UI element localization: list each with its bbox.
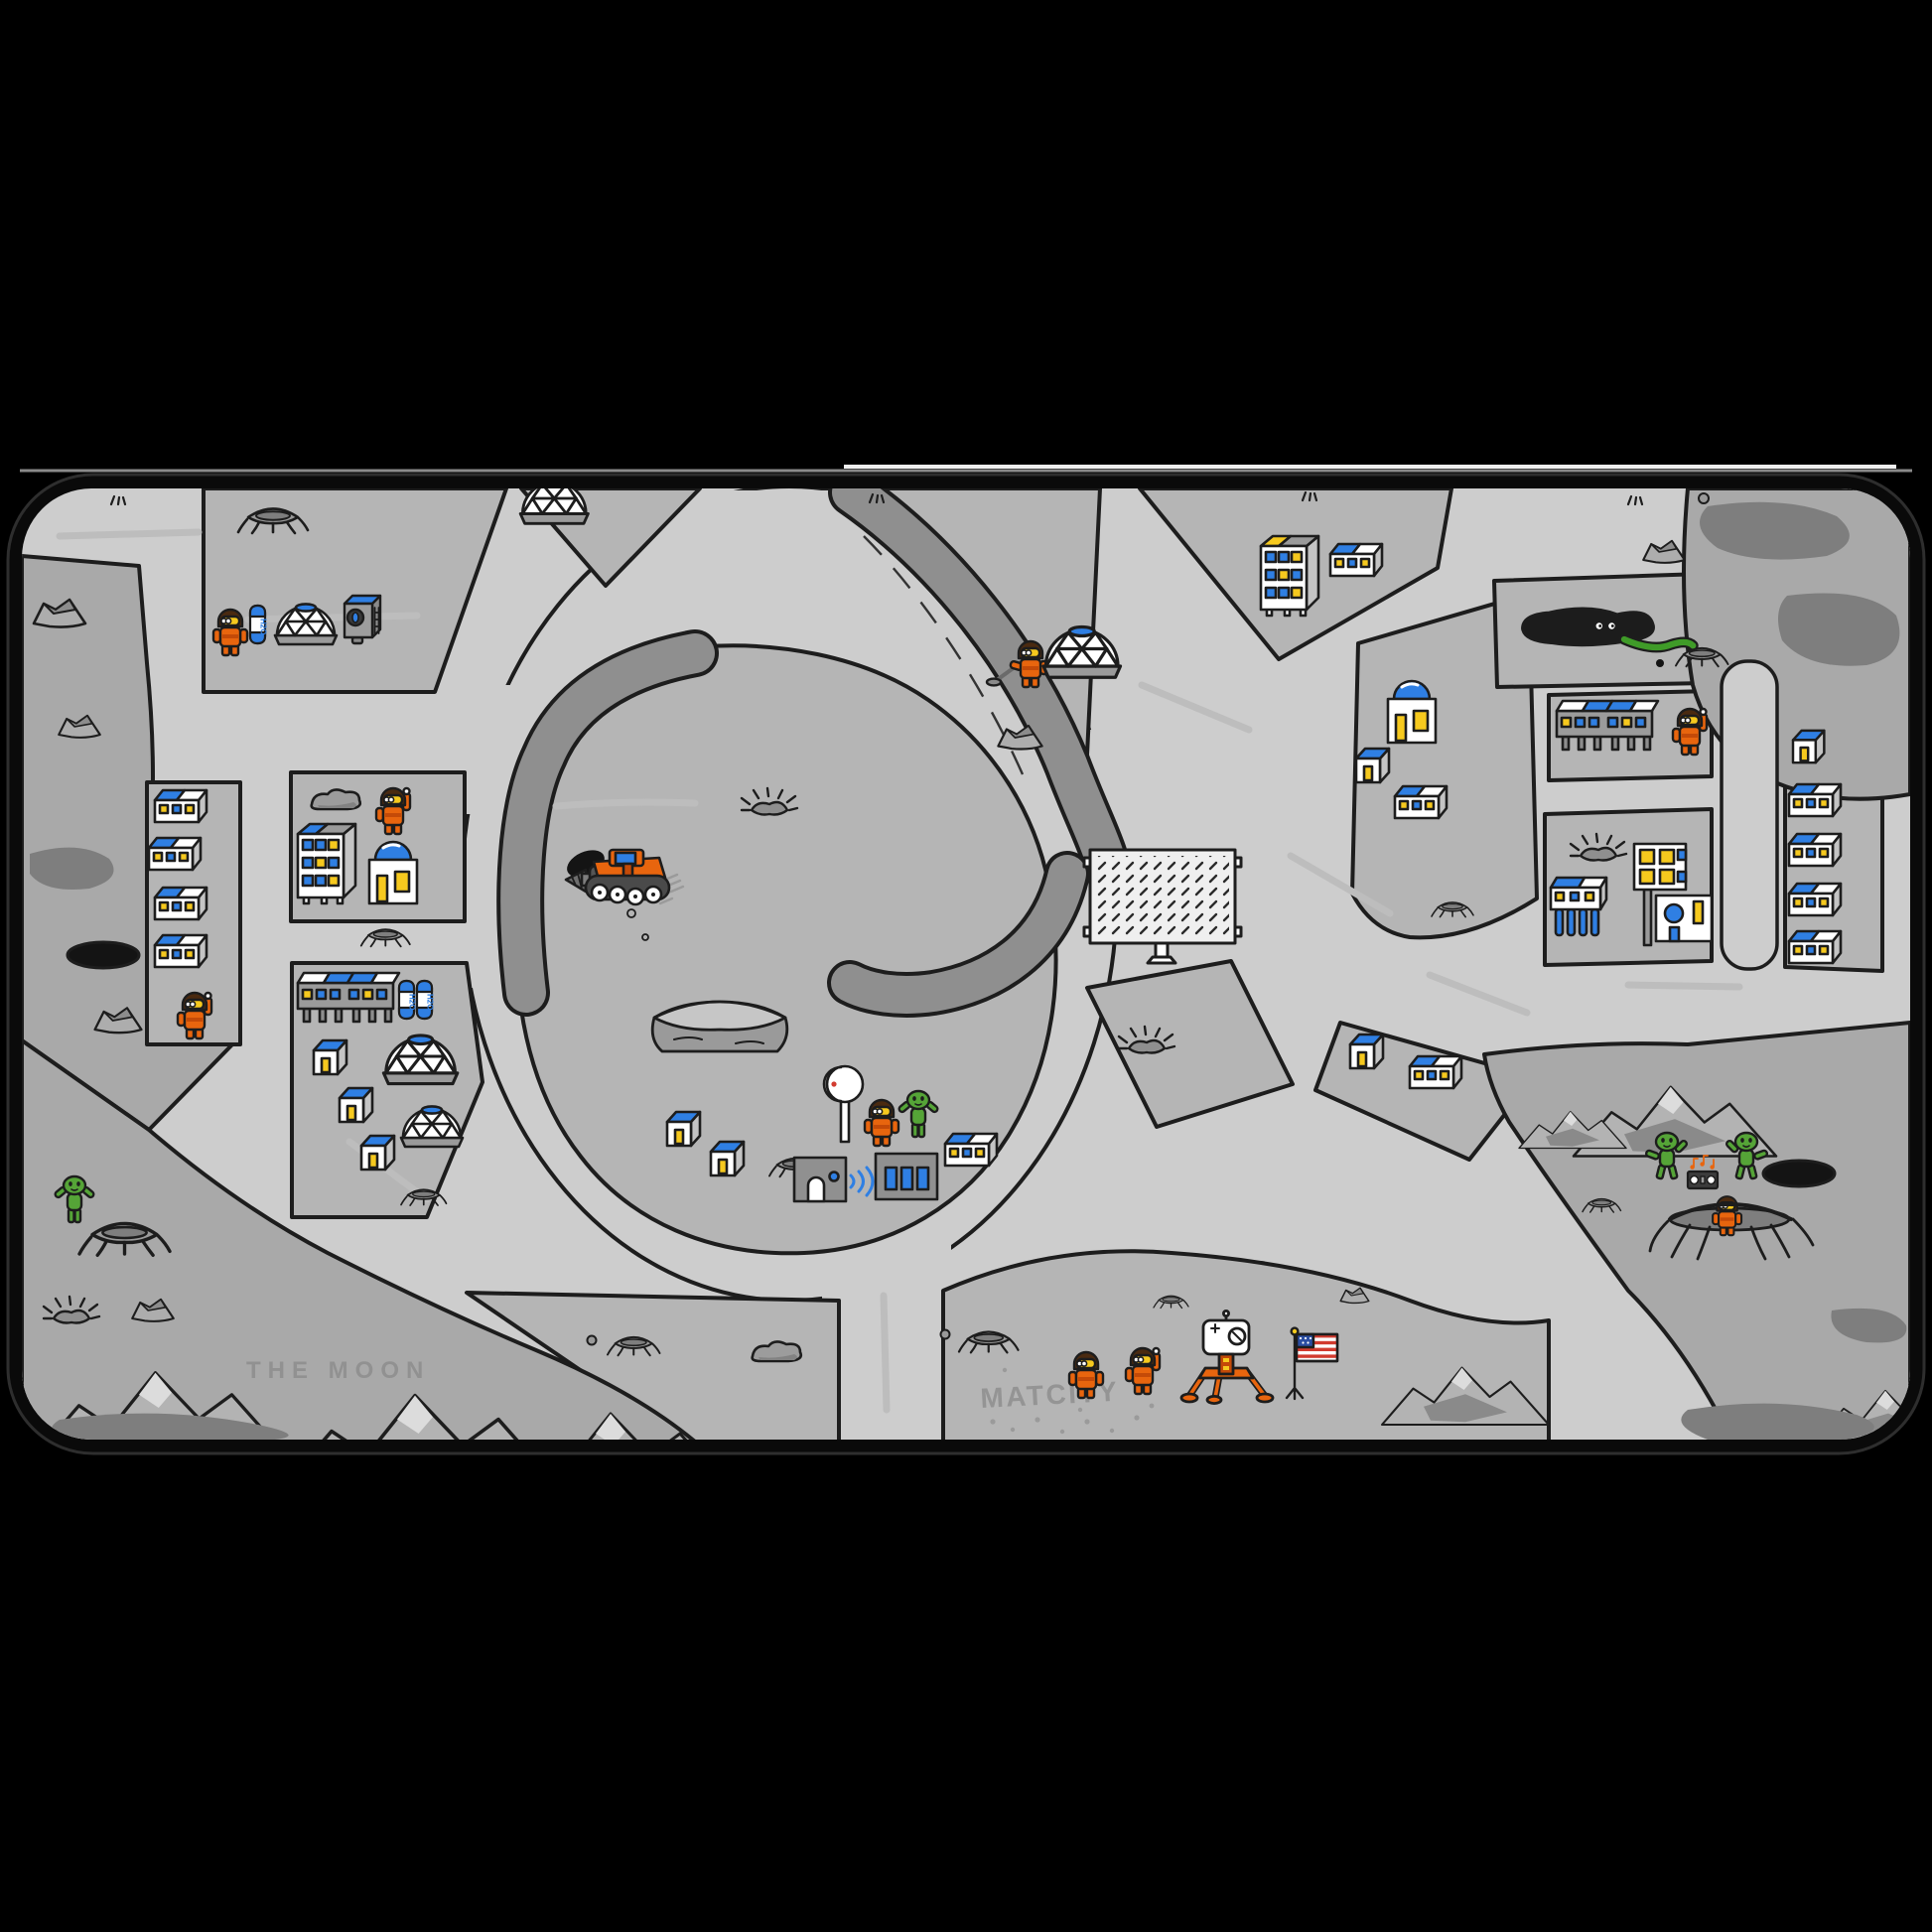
mesa-icon <box>652 1002 787 1051</box>
water-tank-icon <box>399 981 417 1019</box>
barracks-icon <box>1330 544 1382 576</box>
region-title: THE MOON <box>246 1357 430 1384</box>
house-icon <box>361 1136 394 1170</box>
junction-n <box>680 490 854 585</box>
barracks-icon <box>149 838 201 870</box>
hole-icon <box>68 942 139 968</box>
house-icon <box>1793 731 1824 762</box>
moon-mat-scene: H2O <box>0 0 1932 1932</box>
barracks-icon <box>1789 931 1841 963</box>
observatory-icon <box>1388 681 1436 743</box>
house-icon <box>314 1040 346 1074</box>
house-icon <box>1356 749 1389 782</box>
house-icon <box>1350 1035 1383 1068</box>
barracks-icon <box>945 1134 997 1166</box>
house-icon <box>667 1112 700 1146</box>
barracks-icon <box>1410 1056 1461 1088</box>
barracks-icon <box>1789 884 1841 915</box>
water-tank-icon <box>250 606 268 643</box>
barracks-icon <box>155 935 207 967</box>
barracks-icon <box>1789 834 1841 866</box>
stilt-building-icon <box>1551 878 1606 935</box>
barracks-icon <box>155 888 207 919</box>
observatory-icon <box>369 842 417 903</box>
barracks-icon <box>1395 786 1447 818</box>
machine-icon <box>345 596 380 643</box>
barracks-icon <box>155 790 207 822</box>
apartment-building-icon <box>298 824 355 903</box>
hole-icon <box>1763 1161 1835 1186</box>
dead-end-road <box>1722 661 1777 969</box>
house-icon <box>340 1088 372 1122</box>
product-photo: H2O <box>0 0 1932 1932</box>
barracks-icon <box>1789 784 1841 816</box>
apartment-building-icon <box>1261 536 1318 616</box>
water-tank-icon <box>417 981 435 1019</box>
house-icon <box>711 1142 744 1175</box>
